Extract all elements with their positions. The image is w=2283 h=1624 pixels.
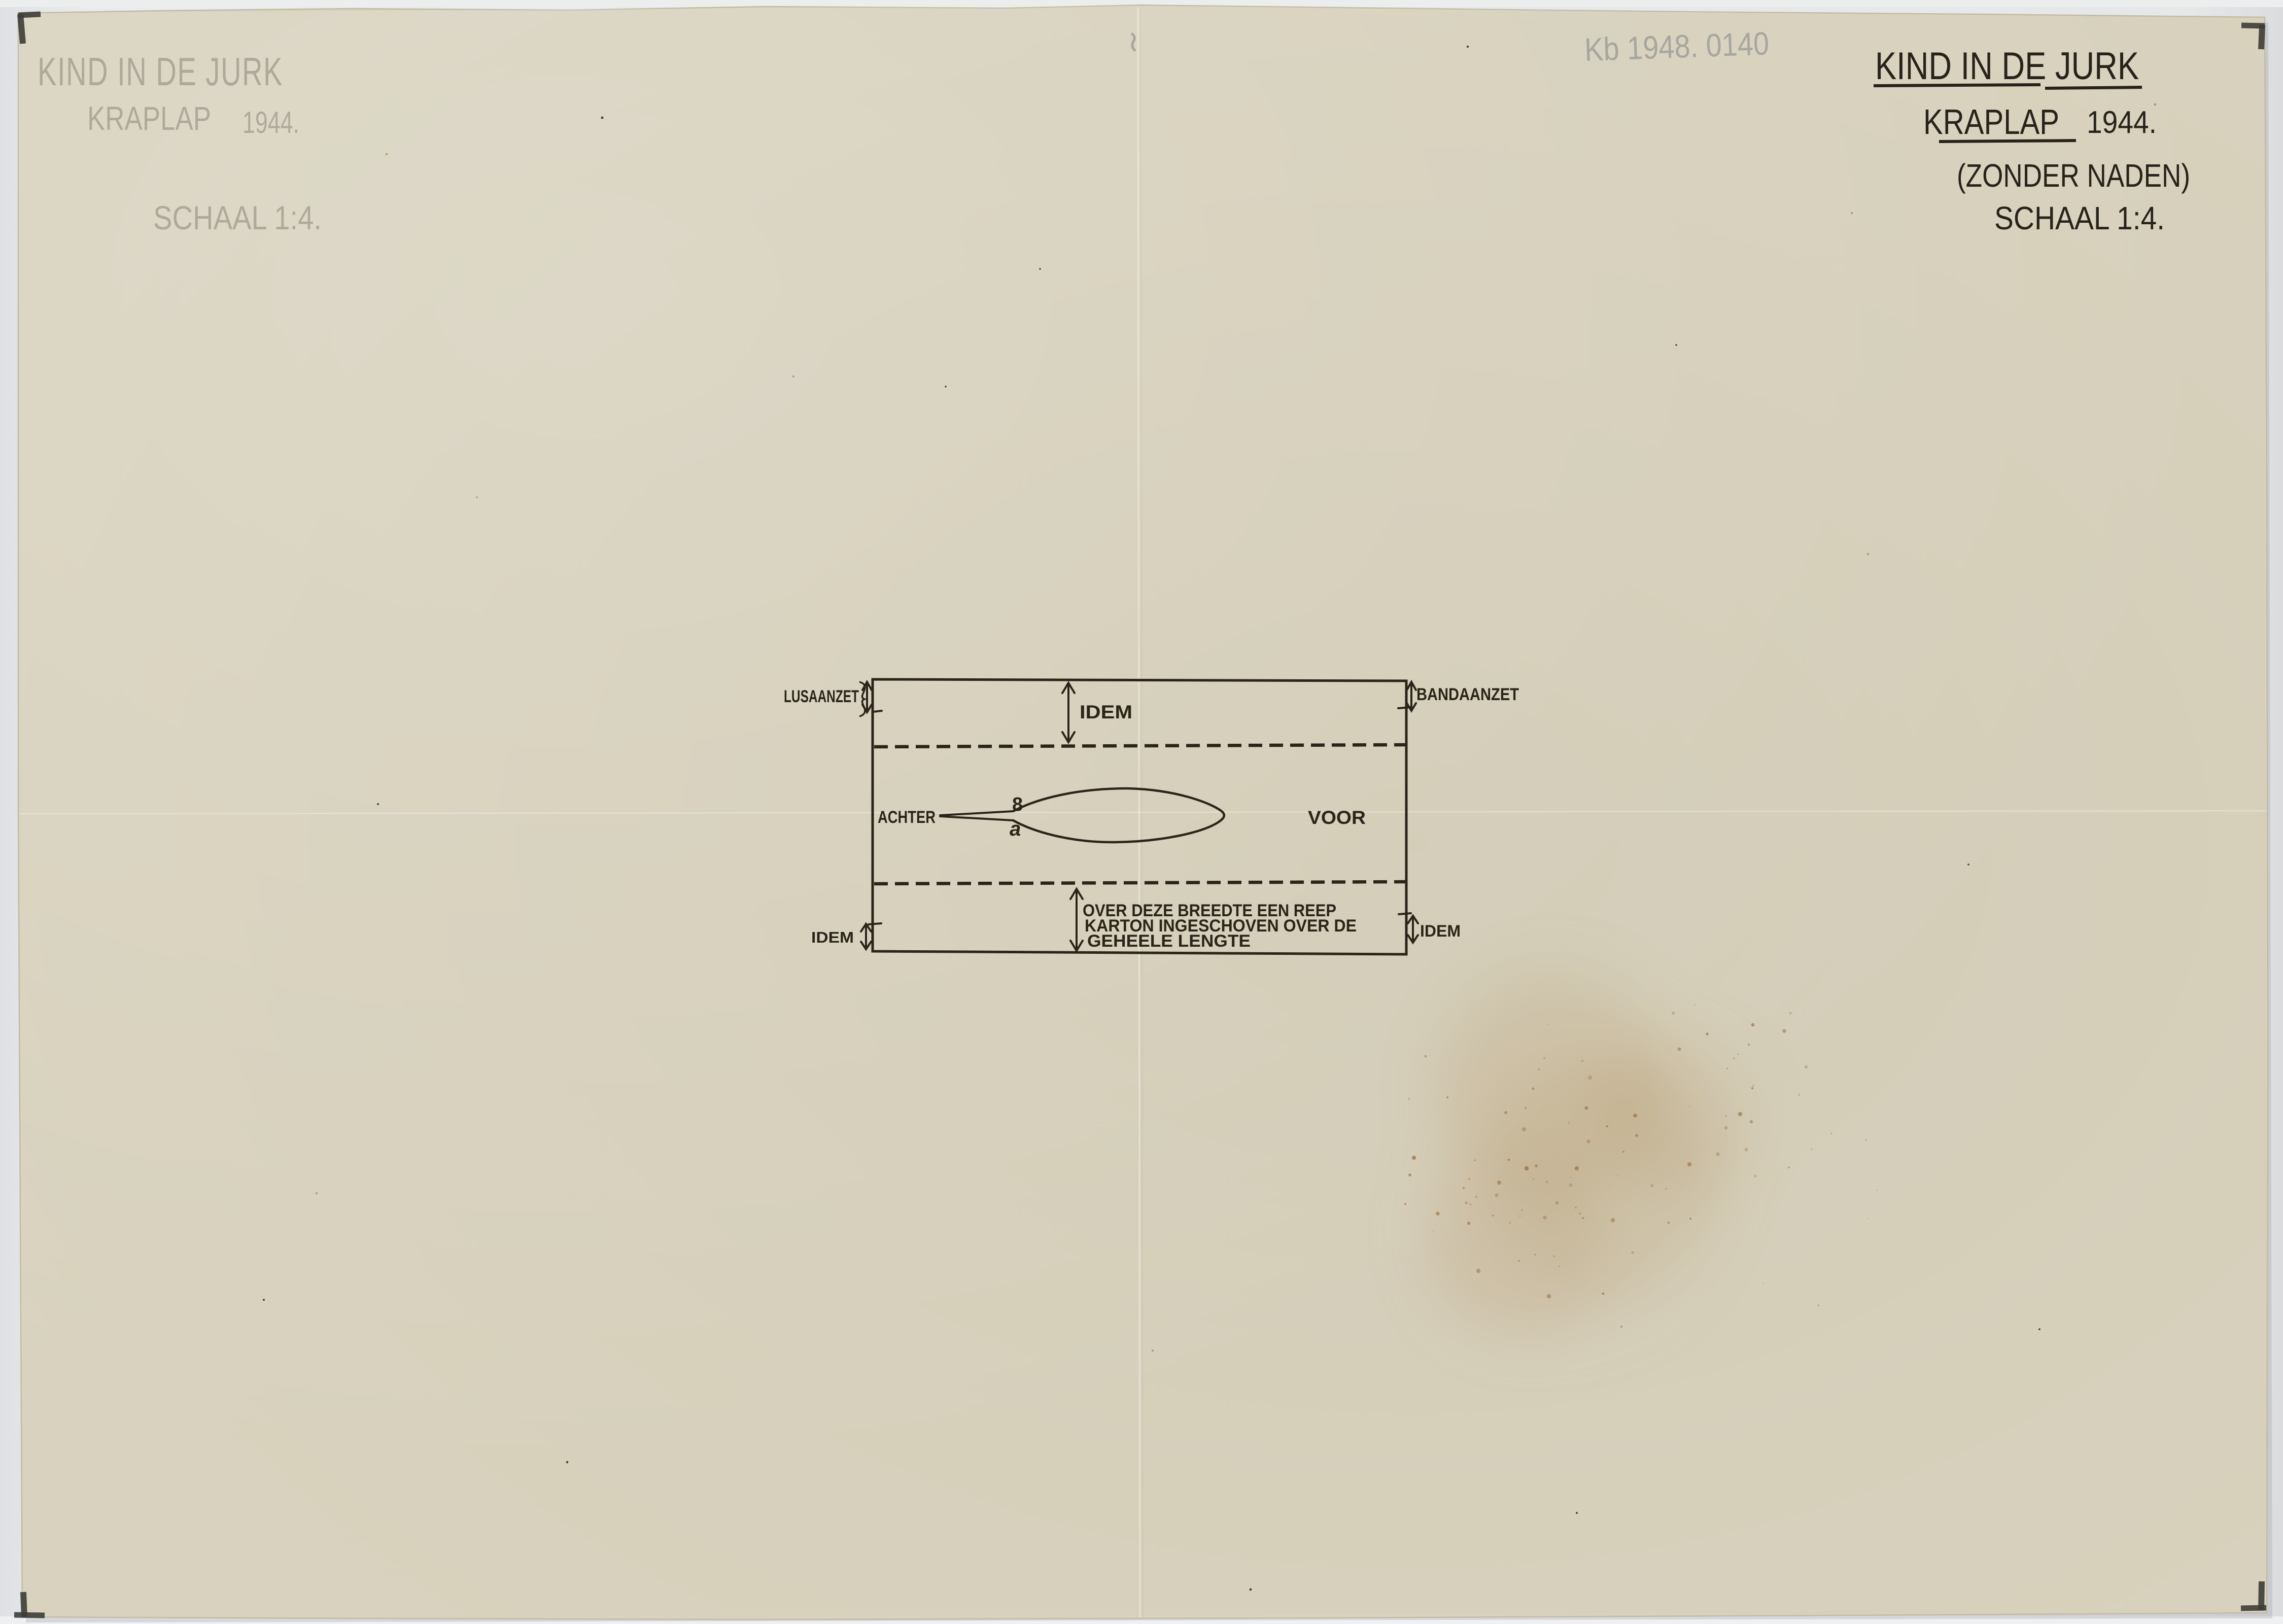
svg-text:1944.: 1944. [2087, 105, 2157, 140]
svg-text:ACHTER: ACHTER [878, 808, 936, 827]
svg-text:a: a [1010, 818, 1021, 840]
svg-text:1944.: 1944. [243, 106, 299, 140]
svg-text:SCHAAL 1:4.: SCHAAL 1:4. [153, 199, 322, 236]
svg-text:LUSAANZET: LUSAANZET [784, 687, 859, 706]
svg-text:IDEM: IDEM [1080, 702, 1132, 722]
svg-text:IDEM: IDEM [1420, 922, 1461, 940]
svg-text:KIND IN DE JURK: KIND IN DE JURK [38, 49, 283, 94]
svg-text:Kb 1948. 0140: Kb 1948. 0140 [1584, 25, 1770, 68]
svg-text:SCHAAL 1:4.: SCHAAL 1:4. [1994, 200, 2165, 236]
svg-text:GEHEELE LENGTE: GEHEELE LENGTE [1087, 931, 1251, 951]
svg-text:(ZONDER NADEN): (ZONDER NADEN) [1957, 157, 2190, 194]
svg-text:KRAPLAP: KRAPLAP [87, 99, 211, 137]
svg-text:8: 8 [1012, 794, 1023, 815]
svg-text:KRAPLAP: KRAPLAP [1923, 102, 2059, 142]
svg-text:IDEM: IDEM [811, 928, 854, 946]
svg-text:BANDAANZET: BANDAANZET [1416, 685, 1519, 704]
svg-text:KIND IN DE JURK: KIND IN DE JURK [1875, 45, 2139, 88]
svg-text:VOOR: VOOR [1308, 807, 1366, 828]
